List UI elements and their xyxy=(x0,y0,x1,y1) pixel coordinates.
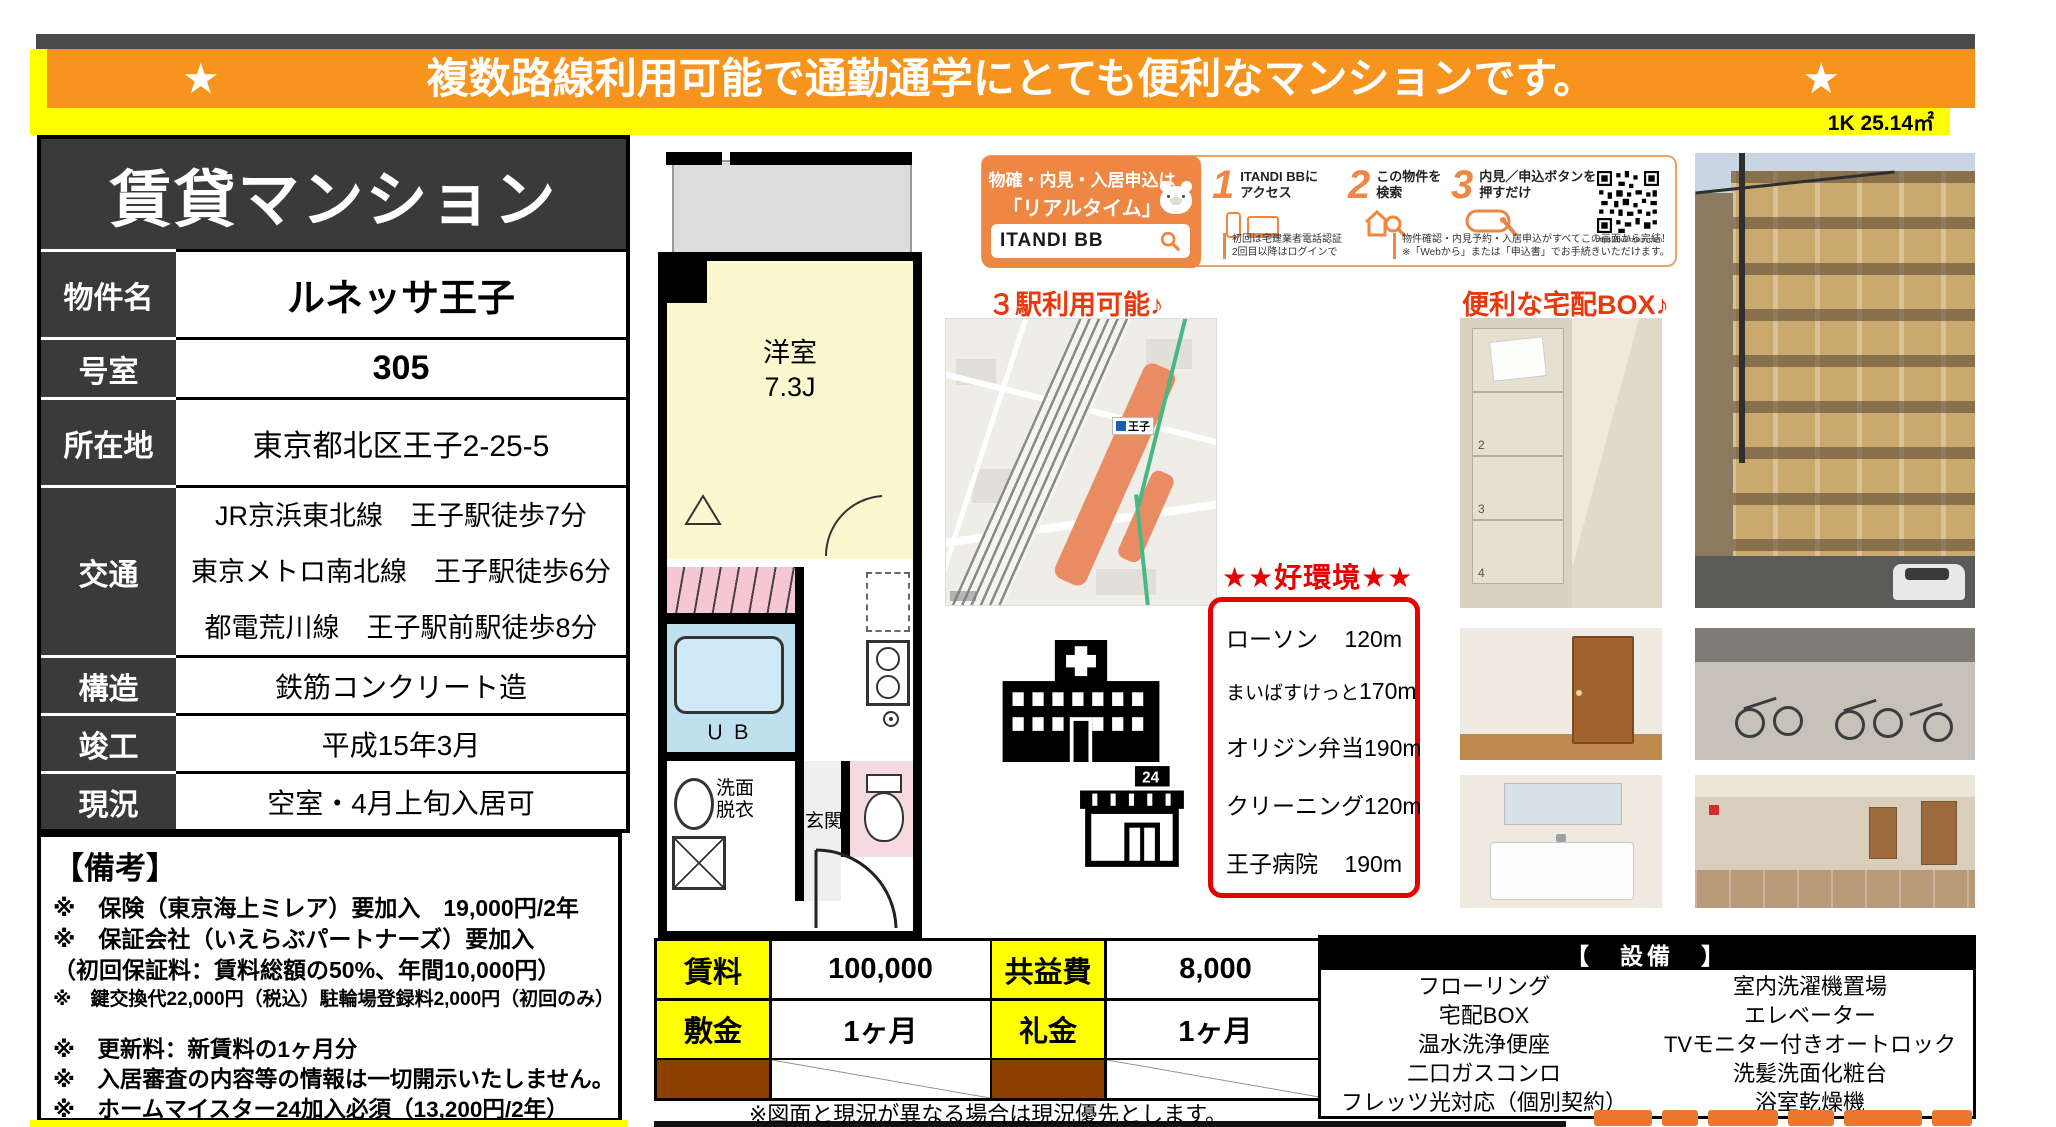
kitchen-counter xyxy=(866,572,910,632)
environment-item: オリジン弁当 190m xyxy=(1226,729,1402,763)
key-money-value: 1ヶ月 xyxy=(1107,1001,1325,1058)
row-value: JR京浜東北線 王子駅徒歩7分 東京メトロ南北線 王子駅徒歩6分 都電荒川線 王… xyxy=(176,485,626,656)
property-card: 賃貸マンション 物件名 ルネッサ王子 号室 305 所在地 東京都北区王子2-2… xyxy=(37,135,630,833)
locker-door: 4 xyxy=(1472,520,1564,584)
parked-car xyxy=(1893,564,1965,600)
photo-corridor xyxy=(1695,775,1975,908)
common-fee-label: 共益費 xyxy=(992,941,1104,998)
key-money-label: 礼金 xyxy=(992,1001,1104,1058)
empty-cell xyxy=(772,1060,990,1098)
room-door-arc xyxy=(824,492,886,558)
bicycle-wheel xyxy=(1773,706,1803,736)
row-label: 号室 xyxy=(41,337,176,397)
unit-bath-label: ＵＢ xyxy=(667,716,795,745)
row-property-name: 物件名 ルネッサ王子 xyxy=(41,249,626,337)
qr-url: https://bukkakun.com xyxy=(1589,237,1669,244)
facilities-left-column: フローリング 宅配BOX 温水洗浄便座 二口ガスコンロ フレッツ光対応（個別契約… xyxy=(1321,970,1647,1117)
wooden-door xyxy=(1572,636,1634,744)
utility-pole xyxy=(1739,153,1745,463)
row-room-number: 号室 305 xyxy=(41,337,626,397)
step-label: 内見／申込ボタンを押すだけ xyxy=(1479,166,1596,204)
closet xyxy=(667,567,804,613)
empty-cell xyxy=(657,1060,769,1098)
itandi-step-1: 1 ITANDI BBにアクセス xyxy=(1212,166,1348,238)
entrance-door-arc xyxy=(810,846,902,934)
step-number: 2 xyxy=(1348,166,1370,204)
row-access: 交通 JR京浜東北線 王子駅徒歩7分 東京メトロ南北線 王子駅徒歩6分 都電荒川… xyxy=(41,485,626,655)
row-label: 所在地 xyxy=(41,397,176,485)
itandi-steps: 1 ITANDI BBにアクセス 2 この物件を検索 xyxy=(1212,166,1592,238)
building-facade xyxy=(1731,171,1975,556)
access-line: 都電荒川線 王子駅前駅徒歩8分 xyxy=(204,600,597,656)
map-attribution xyxy=(950,591,976,601)
facilities-right-column: 室内洗濯機置場 エレベーター TVモニター付きオートロック 洗髪洗面化粧台 浴室… xyxy=(1647,970,1973,1117)
facilities-header: 【 設備 】 xyxy=(1321,938,1973,970)
itandi-caption-1: 初回は宅建業者電話認証2回目以降はログインで xyxy=(1223,233,1342,259)
wall xyxy=(667,613,804,624)
environment-item: ローソン 120m xyxy=(1226,620,1402,654)
toilet-bowl xyxy=(864,792,904,842)
search-icon xyxy=(1159,230,1181,252)
cropped-footer-text xyxy=(1594,1110,1972,1126)
balcony xyxy=(672,160,912,256)
wall xyxy=(667,752,795,761)
wall xyxy=(1695,628,1975,662)
locker-label xyxy=(1489,336,1547,381)
floor-plan: 洋室7.3J ＵＢ 洗面脱衣 玄 xyxy=(658,148,924,940)
flyer-page: ★ 複数路線利用可能で通勤通学にとても便利なマンションです。 ★ 1K 25.1… xyxy=(0,0,2056,1127)
room-label: 洋室7.3J xyxy=(728,336,852,404)
store-24h-icon: 24 xyxy=(1078,766,1190,868)
remarks-heading: 【備考】 xyxy=(53,843,606,888)
step-label: この物件を検索 xyxy=(1376,166,1441,204)
environment-box: ローソン 120m まいばすけっと 170m オリジン弁当 190m クリーニン… xyxy=(1208,597,1420,898)
deposit-label: 敷金 xyxy=(657,1001,769,1058)
step-number: 3 xyxy=(1451,166,1473,204)
bear-mascot-icon xyxy=(1160,186,1192,214)
hospital-icon xyxy=(1002,640,1160,762)
wall-corner xyxy=(667,261,707,303)
station-icon xyxy=(1116,421,1126,431)
tile-floor xyxy=(1695,870,1975,908)
row-label: 交通 xyxy=(41,485,176,656)
photo-delivery-box: 2 3 4 xyxy=(1460,318,1662,608)
row-value: 鉄筋コンクリート造 xyxy=(176,655,626,713)
remarks-line: ※ 保険（東京海上ミレア）要加入 19,000円/2年 xyxy=(53,893,606,924)
bicycle-frame xyxy=(1743,697,1776,710)
bicycle-wheel xyxy=(1735,708,1765,738)
row-value: 空室・4月上旬入居可 xyxy=(176,771,626,829)
row-label: 物件名 xyxy=(41,249,176,337)
star-icon: ★ xyxy=(182,49,220,108)
red-sign xyxy=(1709,805,1719,815)
bicycle-wheel xyxy=(1835,710,1865,740)
price-table: 賃料 100,000 共益費 8,000 敷金 1ヶ月 礼金 1ヶ月 xyxy=(654,938,1328,1101)
row-structure: 構造 鉄筋コンクリート造 xyxy=(41,655,626,713)
row-value: 平成15年3月 xyxy=(176,713,626,771)
headline-text: 複数路線利用可能で通勤通学にとても便利なマンションです。 xyxy=(427,49,1595,108)
mirror xyxy=(1504,783,1622,825)
burner-icon xyxy=(876,675,900,699)
step-number: 1 xyxy=(1212,166,1234,204)
corridor-door xyxy=(1921,801,1957,865)
building-side xyxy=(1695,193,1733,556)
faucet xyxy=(1556,834,1566,842)
vanity-cabinet xyxy=(1490,842,1634,900)
environment-item: 王子病院 190m xyxy=(1226,845,1402,879)
store-sign-24: 24 xyxy=(1142,769,1159,786)
locker-column: 2 3 4 xyxy=(1472,328,1564,584)
row-status: 現況 空室・4月上旬入居可 xyxy=(41,771,626,829)
bottom-yellow-strip xyxy=(30,1120,628,1127)
property-card-title: 賃貸マンション xyxy=(41,139,626,249)
row-label: 竣工 xyxy=(41,713,176,771)
top-dark-bar xyxy=(36,34,1975,49)
itandi-left-panel: 物確・内見・入居申込は 「リアルタイム」Web受付 ITANDI BB xyxy=(982,156,1201,268)
balcony-wall xyxy=(730,152,912,165)
deposit-value: 1ヶ月 xyxy=(772,1001,990,1058)
corridor-door xyxy=(1869,807,1897,859)
area-label: 1K 25.14㎡ xyxy=(1828,107,1934,137)
delivery-box-caption: 便利な宅配BOX♪ xyxy=(1462,283,1669,322)
rent-value: 100,000 xyxy=(772,941,990,998)
facilities-box: 【 設備 】 フローリング 宅配BOX 温水洗浄便座 二口ガスコンロ フレッツ光… xyxy=(1318,935,1976,1119)
star-icon: ★ xyxy=(1802,49,1840,108)
common-fee-value: 8,000 xyxy=(1107,941,1325,998)
photo-bicycle-parking xyxy=(1695,628,1975,760)
itandi-left-line1: 物確・内見・入居申込は xyxy=(982,166,1182,191)
bicycle-frame xyxy=(1843,699,1876,712)
itandi-logo-text: ITANDI BB xyxy=(1000,230,1104,252)
itandi-banner: 物確・内見・入居申込は 「リアルタイム」Web受付 ITANDI BB 1 IT… xyxy=(981,155,1677,267)
environment-item: まいばすけっと 170m xyxy=(1226,678,1402,705)
ceiling xyxy=(1695,775,1975,797)
access-line: JR京浜東北線 王子駅徒歩7分 xyxy=(215,488,587,544)
itandi-search-bar: ITANDI BB xyxy=(991,224,1190,258)
entrance-label: 玄関 xyxy=(803,806,845,833)
remarks-line: ※ 入居審査の内容等の情報は一切開示いたしません。 xyxy=(53,1065,606,1095)
bottom-note: ※図面と現況が異なる場合は現況優先とします。 xyxy=(654,1097,1322,1127)
itandi-step-2: 2 この物件を検索 xyxy=(1348,166,1451,238)
gas-stove xyxy=(866,640,910,706)
locker-door: 2 xyxy=(1472,392,1564,456)
bicycle-wheel xyxy=(1923,712,1953,742)
washer-space xyxy=(672,836,726,890)
environment-item: クリーニング 120m xyxy=(1226,787,1402,821)
row-value: 東京都北区王子2-25-5 xyxy=(176,397,626,485)
access-line: 東京メトロ南北線 王子駅徒歩6分 xyxy=(191,544,611,600)
washbasin xyxy=(674,778,714,830)
remarks-line: ※ 鍵交換代22,000円（税込）駐輪場登録料2,000円（初回のみ） xyxy=(53,986,606,1013)
burner-icon xyxy=(876,647,900,671)
remarks-box: 【備考】 ※ 保険（東京海上ミレア）要加入 19,000円/2年 ※ 保証会社（… xyxy=(37,833,622,1122)
bathtub xyxy=(674,636,784,714)
photo-building-exterior xyxy=(1695,153,1975,608)
wall xyxy=(795,567,804,901)
empty-cell xyxy=(1107,1060,1325,1098)
row-label: 構造 xyxy=(41,655,176,713)
door-mark-triangle xyxy=(684,494,722,526)
empty-cell xyxy=(992,1060,1104,1098)
bicycle-wheel xyxy=(1873,708,1903,738)
locker-door: 3 xyxy=(1472,456,1564,520)
remarks-line: ※ 更新料：新賃料の1ヶ月分 xyxy=(53,1035,606,1065)
row-value: ルネッサ王子 xyxy=(176,249,626,337)
area-strip: 1K 25.14㎡ xyxy=(30,108,1950,135)
door-knob xyxy=(1576,690,1582,696)
locker-side-panel xyxy=(1572,318,1662,608)
rent-label: 賃料 xyxy=(657,941,769,998)
itandi-step-3: 3 内見／申込ボタンを押すだけ xyxy=(1451,166,1592,238)
photo-washbasin xyxy=(1460,775,1662,908)
locker-door xyxy=(1472,328,1564,392)
photo-room-door xyxy=(1460,628,1662,760)
step-label: ITANDI BBにアクセス xyxy=(1240,166,1318,204)
banner-yellow-edge xyxy=(30,49,47,108)
row-label: 現況 xyxy=(41,771,176,829)
row-address: 所在地 東京都北区王子2-25-5 xyxy=(41,397,626,485)
balcony-wall xyxy=(666,152,722,165)
floor-gap xyxy=(667,559,913,567)
map-station-label: 王子 xyxy=(1112,417,1154,435)
qr-code xyxy=(1597,171,1659,233)
area-map: 王子 xyxy=(945,318,1217,606)
stations-caption: ３駅利用可能♪ xyxy=(988,283,1164,322)
washroom-label: 洗面脱衣 xyxy=(716,778,754,822)
remarks-line: （初回保証料：賃料総額の50%、年間10,000円） xyxy=(53,955,606,986)
sink-drain-icon xyxy=(882,710,900,728)
environment-title: ★★好環境★★ xyxy=(1222,556,1413,596)
row-value: 305 xyxy=(176,337,626,397)
row-built: 竣工 平成15年3月 xyxy=(41,713,626,771)
headline-banner: ★ 複数路線利用可能で通勤通学にとても便利なマンションです。 ★ xyxy=(47,49,1975,108)
toilet-tank xyxy=(866,774,902,793)
remarks-line: ※ 保証会社（いえらぶパートナーズ）要加入 xyxy=(53,924,606,955)
